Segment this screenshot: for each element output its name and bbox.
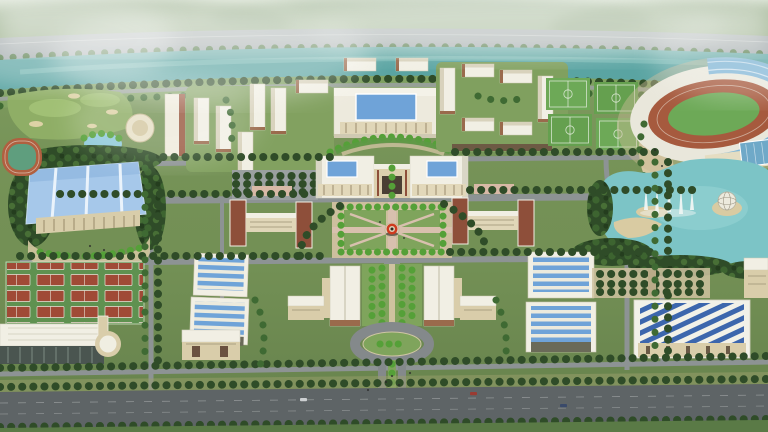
laboratory-east	[526, 252, 596, 352]
auditorium-door-2	[220, 346, 228, 357]
soccer-field-3	[548, 114, 592, 146]
auditorium	[182, 330, 240, 360]
academic-east-tower-1	[452, 198, 468, 244]
soccer-field-1	[546, 78, 590, 110]
fog-over-dorms	[70, 74, 260, 166]
north-slab-2	[396, 58, 428, 71]
natatorium-rotunda-roof	[100, 336, 117, 353]
academic-west-tower-2	[296, 202, 312, 248]
auditorium-door-1	[192, 346, 200, 357]
track-infield	[8, 144, 36, 170]
gate-hall-west-facade	[318, 184, 372, 196]
quad-slab-1	[440, 68, 455, 114]
academic-west-roof-band	[246, 213, 296, 218]
academic-west-wing	[246, 216, 296, 232]
academic-east-tower-2	[518, 200, 534, 246]
tennis-court-grid	[7, 263, 143, 323]
academic-west-tower-1	[230, 200, 246, 246]
side-hall-east	[460, 296, 496, 320]
library-courtyard-skylight	[356, 94, 416, 120]
side-hall-west	[288, 296, 324, 320]
lab-east-south-skylights	[531, 306, 591, 342]
lab-east-louver-face	[531, 342, 591, 352]
main-road	[0, 372, 768, 432]
right-building-roof	[744, 258, 768, 270]
right-edge-building	[744, 258, 768, 298]
gate-hall-east-facade	[412, 184, 466, 196]
quad-slab-3	[500, 70, 532, 83]
gate-hall-west	[316, 156, 374, 198]
gate-hall-east-skylight	[427, 161, 457, 177]
main-library	[334, 88, 438, 138]
natatorium-roof	[0, 324, 104, 346]
sand-bunker-1	[29, 121, 43, 127]
library-shadow	[334, 134, 438, 138]
axis-formal-garden	[362, 264, 422, 326]
campus-rendering	[0, 0, 768, 432]
lab-east-north-skylights	[533, 256, 589, 292]
auditorium-walls	[182, 342, 240, 360]
gate-hall-west-skylight	[327, 161, 357, 177]
quad-slab-6	[500, 122, 532, 135]
sphere-fountain	[718, 192, 736, 210]
natatorium-glass-face	[0, 346, 104, 364]
central-plaza	[332, 202, 452, 258]
sand-bunker-2	[68, 93, 80, 98]
auditorium-roof	[182, 330, 240, 342]
quad-slab-2	[462, 64, 494, 77]
academic-east-roof-band	[468, 211, 518, 216]
gate-hall-east	[410, 156, 468, 198]
campus-aerial-scene	[0, 0, 768, 432]
red-ring-sculpture	[385, 223, 399, 237]
lab-west-north-skylights	[197, 257, 244, 291]
running-track-field	[2, 138, 42, 176]
academic-east-wing	[468, 214, 518, 230]
tennis-courts	[6, 262, 144, 324]
quad-slab-5	[462, 118, 494, 131]
